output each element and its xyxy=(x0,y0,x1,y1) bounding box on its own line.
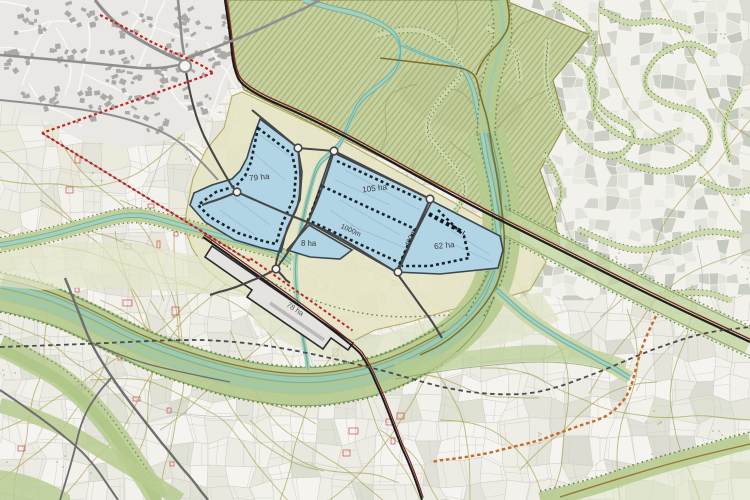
svg-text:8 ha: 8 ha xyxy=(301,239,317,248)
